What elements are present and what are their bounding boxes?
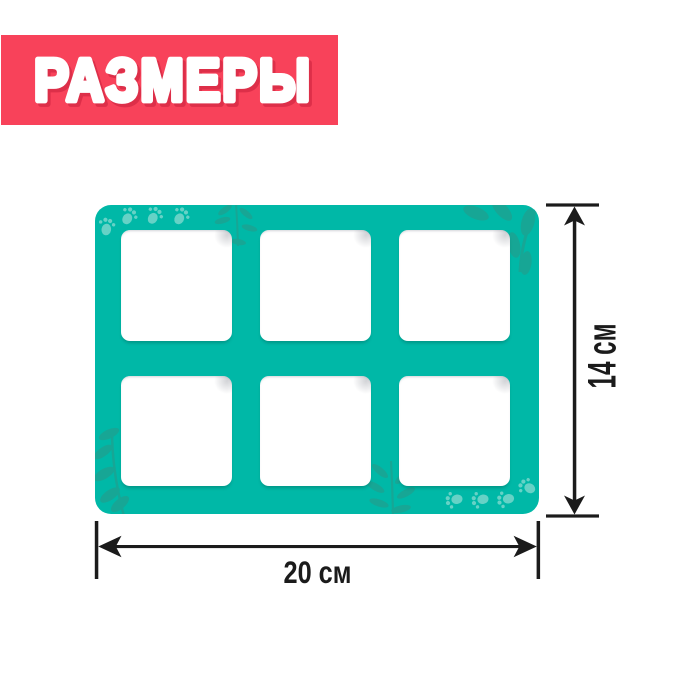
svg-text:РАЗМЕРЫ: РАЗМЕРЫ [34, 46, 312, 113]
svg-text:20 см: 20 см [284, 554, 352, 590]
svg-text:14 см: 14 см [581, 324, 625, 389]
